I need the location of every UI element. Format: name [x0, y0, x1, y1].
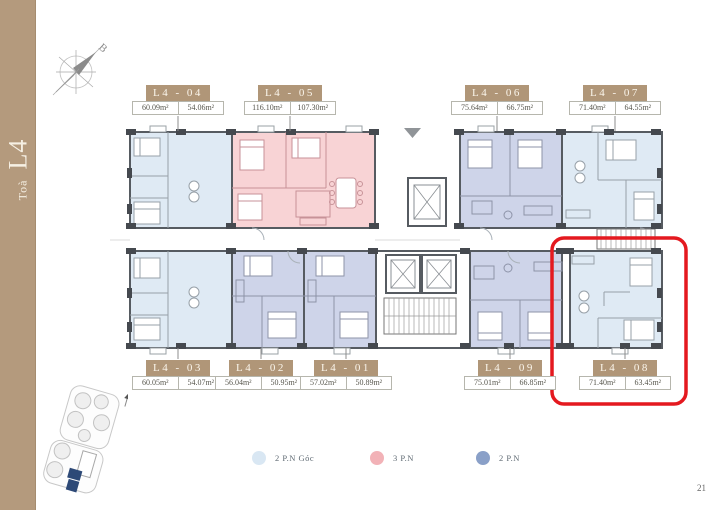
unit-area-right: 64.55m²	[616, 102, 661, 114]
legend-item-2pn: 2 P.N	[476, 451, 520, 465]
unit-label-l4-06[interactable]: L4 - 06 75.64m²66.75m²	[451, 85, 543, 115]
unit-area-left: 75.01m²	[465, 377, 511, 389]
unit-label-l4-03[interactable]: L4 - 03 60.05m²54.07m²	[132, 360, 224, 390]
unit-label-l4-01[interactable]: L4 - 01 57.02m²50.89m²	[300, 360, 392, 390]
unit-area-right: 54.06m²	[179, 102, 224, 114]
unit-area-right: 107.30m²	[291, 102, 336, 114]
unit-code: L4 - 01	[314, 360, 378, 376]
unit-label-l4-08[interactable]: L4 - 08 71.40m²63.45m²	[579, 360, 671, 390]
unit-code: L4 - 03	[146, 360, 210, 376]
unit-area-right: 50.89m²	[347, 377, 392, 389]
unit-area-left: 60.05m²	[133, 377, 179, 389]
unit-label-l4-09[interactable]: L4 - 09 75.01m²66.85m²	[464, 360, 556, 390]
page-number: 21	[697, 483, 706, 493]
unit-label-l4-02[interactable]: L4 - 02 56.04m²50.95m²	[215, 360, 307, 390]
unit-area-left: 56.04m²	[216, 377, 262, 389]
legend-item-3pn: 3 P.N	[370, 451, 414, 465]
unit-area-left: 116.10m²	[245, 102, 291, 114]
unit-area-right: 63.45m²	[626, 377, 671, 389]
unit-area-left: 60.09m²	[133, 102, 179, 114]
legend-dot-2pn	[476, 451, 490, 465]
unit-label-l4-05[interactable]: L4 - 05 116.10m²107.30m²	[244, 85, 336, 115]
unit-label-l4-04[interactable]: L4 - 04 60.09m²54.06m²	[132, 85, 224, 115]
legend-dot-3pn	[370, 451, 384, 465]
unit-label-l4-07[interactable]: L4 - 07 71.40m²64.55m²	[569, 85, 661, 115]
entrance-arrow-icon	[404, 128, 421, 138]
unit-code: L4 - 09	[478, 360, 542, 376]
unit-code: L4 - 07	[583, 85, 647, 101]
unit-code: L4 - 04	[146, 85, 210, 101]
legend-dot-2pn-goc	[252, 451, 266, 465]
staircase-core	[384, 298, 456, 334]
unit-area-right: 66.85m²	[511, 377, 556, 389]
legend-label: 3 P.N	[393, 453, 414, 463]
unit-code: L4 - 06	[465, 85, 529, 101]
lift-core-top	[408, 178, 446, 226]
lift-core-bottom	[386, 255, 456, 293]
site-plan-map	[36, 380, 128, 498]
unit-area-right: 66.75m²	[498, 102, 543, 114]
unit-code: L4 - 05	[258, 85, 322, 101]
unit-code: L4 - 02	[229, 360, 293, 376]
unit-area-left: 71.40m²	[580, 377, 626, 389]
legend-label: 2 P.N	[499, 453, 520, 463]
unit-area-left: 57.02m²	[301, 377, 347, 389]
unit-area-left: 71.40m²	[570, 102, 616, 114]
legend-item-2pn-goc: 2 P.N Góc	[252, 451, 314, 465]
unit-code: L4 - 08	[593, 360, 657, 376]
unit-area-left: 75.64m²	[452, 102, 498, 114]
legend-label: 2 P.N Góc	[275, 453, 314, 463]
